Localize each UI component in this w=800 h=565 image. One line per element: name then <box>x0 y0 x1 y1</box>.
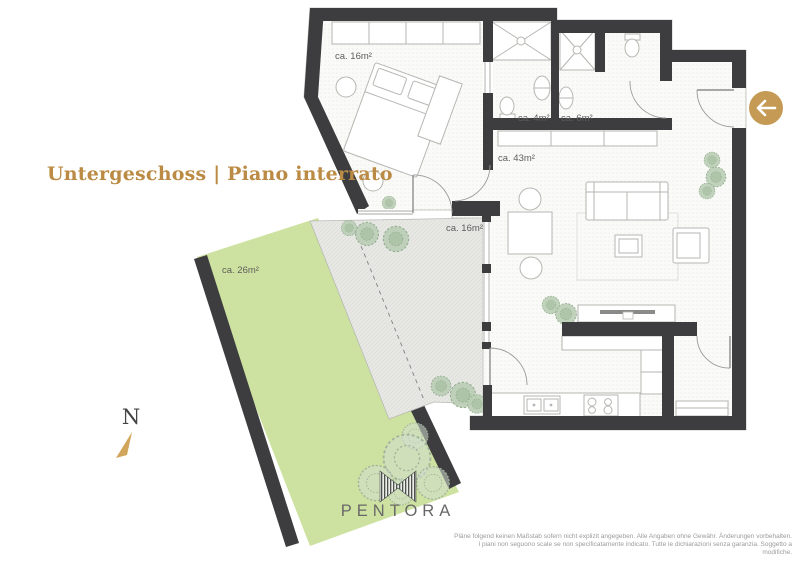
hall-sideboard <box>498 131 657 146</box>
wardrobe <box>332 22 480 44</box>
sliding-door-bathroom <box>483 62 493 93</box>
wall <box>732 128 746 418</box>
shower-large <box>560 30 595 70</box>
bedside-table <box>336 77 356 97</box>
tv-sideboard <box>578 305 675 322</box>
back-button[interactable] <box>749 91 783 125</box>
plant-icon <box>383 226 408 251</box>
bedroom-area-label: ca. 16m² <box>335 51 372 62</box>
disclaimer-line-it: I piani non seguono scale se non specifi… <box>452 541 792 557</box>
plant-icon <box>431 376 451 396</box>
plant-icon <box>556 304 577 325</box>
coffee-table <box>615 235 642 257</box>
dining-chair <box>520 257 542 279</box>
wall <box>483 385 492 418</box>
shower-small <box>492 22 551 60</box>
wall <box>660 25 672 81</box>
wall <box>483 93 493 170</box>
compass-north-label: N <box>122 405 140 429</box>
wall <box>317 8 557 21</box>
kitchen-sink <box>524 396 560 414</box>
terrace-area-label: ca. 16m² <box>446 223 483 234</box>
armchair <box>673 228 709 263</box>
window <box>482 215 491 349</box>
pentora-wordmark: PENTORA <box>341 502 455 520</box>
dining-chair <box>519 188 541 210</box>
sink-large-bath <box>559 87 573 109</box>
sink-small-bath <box>534 76 550 100</box>
compass-needle-icon <box>116 432 132 458</box>
wall <box>660 50 746 62</box>
plant-icon <box>355 222 378 245</box>
disclaimer-line-de: Pläne folgend keinen Maßstab sofern nich… <box>452 533 792 541</box>
wall <box>551 20 559 130</box>
sliding-door-terrace <box>358 209 413 216</box>
wall <box>595 28 605 72</box>
toilet-large-bath <box>625 34 640 57</box>
wall <box>483 21 493 62</box>
wall <box>470 416 746 430</box>
sofa <box>586 182 668 220</box>
wall <box>452 201 500 216</box>
plant-icon <box>704 152 720 168</box>
plant-icon <box>699 183 715 199</box>
toilet-small-bath <box>500 97 515 121</box>
plant-icon <box>382 196 396 210</box>
floorplan-page: Untergeschoss | Piano interrato <box>0 0 800 565</box>
wall <box>562 322 697 336</box>
wall <box>662 336 674 418</box>
bathroom-small-area-label: ca. 4m² <box>518 113 550 124</box>
wall <box>551 20 672 33</box>
living-area-label: ca. 43m² <box>498 153 535 164</box>
page-title: Untergeschoss | Piano interrato <box>47 163 393 185</box>
wall <box>732 62 746 88</box>
compass: N <box>116 405 140 458</box>
stove <box>584 395 618 416</box>
footer-disclaimer: Pläne folgend keinen Maßstab sofern nich… <box>452 533 792 557</box>
tree-icon <box>417 467 450 500</box>
bathroom-large-area-label: ca. 6m² <box>561 113 593 124</box>
plant-icon <box>341 220 356 235</box>
garden-area-label: ca. 26m² <box>222 265 259 276</box>
dining-table <box>508 212 552 254</box>
storage-shelf <box>676 401 728 416</box>
floor-plan-canvas: ca. 16m² ca. 4m² ca. 6m² ca. 43m² ca. 16… <box>0 0 800 565</box>
